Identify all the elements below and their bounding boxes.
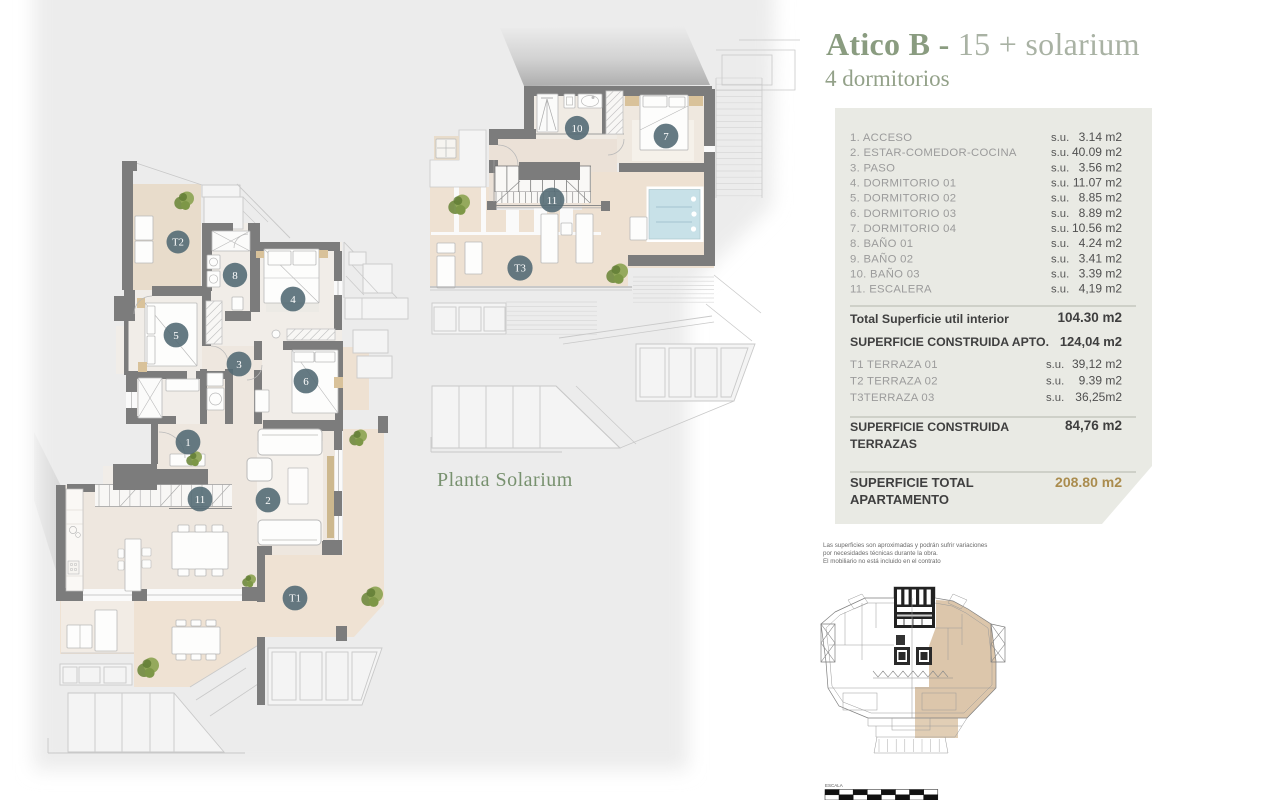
svg-text:8.85 m2: 8.85 m2 — [1079, 191, 1123, 205]
svg-text:s.u.: s.u. — [1046, 359, 1064, 371]
svg-text:4,19 m2: 4,19 m2 — [1079, 282, 1123, 296]
svg-text:Total Superficie util interior: Total Superficie util interior — [850, 312, 1009, 326]
svg-text:3: 3 — [236, 359, 242, 371]
svg-text:s.u.: s.u. — [1051, 177, 1069, 189]
svg-text:10. BAÑO 03: 10. BAÑO 03 — [850, 267, 920, 280]
svg-text:8: 8 — [232, 270, 238, 282]
svg-text:3. PASO: 3. PASO — [850, 162, 895, 174]
svg-text:4. DORMITORIO 01: 4. DORMITORIO 01 — [850, 177, 956, 189]
svg-text:5. DORMITORIO 02: 5. DORMITORIO 02 — [850, 193, 956, 205]
svg-text:6: 6 — [303, 376, 309, 388]
svg-text:s.u.: s.u. — [1051, 238, 1069, 250]
svg-text:Planta Solarium: Planta Solarium — [437, 469, 573, 491]
svg-text:s.u.: s.u. — [1051, 284, 1069, 296]
svg-text:6. DORMITORIO 03: 6. DORMITORIO 03 — [850, 208, 956, 220]
svg-text:8.89 m2: 8.89 m2 — [1079, 206, 1123, 220]
svg-text:s.u.: s.u. — [1051, 162, 1069, 174]
svg-text:ESCALA: ESCALA — [825, 783, 843, 788]
svg-text:s.u.: s.u. — [1051, 193, 1069, 205]
svg-text:124,04 m2: 124,04 m2 — [1060, 334, 1122, 349]
svg-text:8. BAÑO 01: 8. BAÑO 01 — [850, 237, 913, 250]
svg-text:por necesidades técnicas duran: por necesidades técnicas durante la obra… — [823, 550, 938, 557]
svg-text:1. ACCESO: 1. ACCESO — [850, 132, 912, 144]
svg-text:9. BAÑO 02: 9. BAÑO 02 — [850, 252, 913, 265]
svg-text:T1 TERRAZA 01: T1 TERRAZA 01 — [850, 359, 938, 371]
svg-text:40.09 m2: 40.09 m2 — [1072, 145, 1122, 159]
svg-text:9.39 m2: 9.39 m2 — [1079, 374, 1123, 388]
svg-text:4.24 m2: 4.24 m2 — [1079, 236, 1123, 250]
svg-text:SUPERFICIE TOTAL: SUPERFICIE TOTAL — [850, 475, 974, 490]
svg-text:3.41 m2: 3.41 m2 — [1079, 251, 1123, 265]
svg-text:1: 1 — [185, 437, 191, 449]
svg-text:4: 4 — [290, 294, 296, 306]
svg-text:s.u.: s.u. — [1051, 268, 1069, 280]
svg-text:El mobiliario no está incluido: El mobiliario no está incluido en el con… — [823, 558, 941, 565]
svg-text:2: 2 — [265, 495, 271, 507]
svg-text:208.80 m2: 208.80 m2 — [1055, 474, 1122, 490]
svg-text:3.39 m2: 3.39 m2 — [1079, 266, 1123, 280]
svg-text:2. ESTAR-COMEDOR-COCINA: 2. ESTAR-COMEDOR-COCINA — [850, 147, 1017, 159]
svg-text:s.u.: s.u. — [1051, 132, 1069, 144]
svg-text:s.u.: s.u. — [1051, 223, 1069, 235]
svg-text:Las superficies son aproximada: Las superficies son aproximadas y podrán… — [823, 542, 987, 549]
svg-text:s.u.: s.u. — [1046, 392, 1064, 404]
svg-text:3.56 m2: 3.56 m2 — [1079, 160, 1123, 174]
svg-text:11: 11 — [547, 195, 558, 207]
svg-text:7: 7 — [663, 131, 669, 143]
svg-text:11. ESCALERA: 11. ESCALERA — [850, 284, 932, 296]
svg-text:39,12 m2: 39,12 m2 — [1072, 357, 1122, 371]
svg-text:4 dormitorios: 4 dormitorios — [825, 66, 950, 91]
svg-text:36,25m2: 36,25m2 — [1075, 390, 1122, 404]
svg-text:T3: T3 — [514, 264, 526, 275]
svg-text:s.u.: s.u. — [1046, 376, 1064, 388]
svg-text:T1: T1 — [289, 594, 301, 605]
svg-text:10.56 m2: 10.56 m2 — [1072, 221, 1122, 235]
svg-text:T2 TERRAZA 02: T2 TERRAZA 02 — [850, 376, 938, 388]
svg-text:T3TERRAZA 03: T3TERRAZA 03 — [850, 392, 935, 404]
svg-text:11: 11 — [195, 494, 206, 506]
svg-text:TERRAZAS: TERRAZAS — [850, 437, 917, 451]
svg-text:11.07 m2: 11.07 m2 — [1073, 175, 1122, 189]
svg-text:s.u.: s.u. — [1051, 147, 1069, 159]
svg-text:s.u.: s.u. — [1051, 208, 1069, 220]
svg-text:SUPERFICIE CONSTRUIDA APTO.: SUPERFICIE CONSTRUIDA APTO. — [850, 335, 1049, 349]
svg-text:SUPERFICIE CONSTRUIDA: SUPERFICIE CONSTRUIDA — [850, 420, 1009, 434]
svg-text:Atico B - 15 + solarium: Atico B - 15 + solarium — [826, 26, 1140, 62]
svg-text:5: 5 — [173, 330, 179, 342]
svg-text:10: 10 — [572, 123, 584, 135]
svg-text:s.u.: s.u. — [1051, 253, 1069, 265]
svg-text:T2: T2 — [172, 238, 184, 249]
svg-text:3.14 m2: 3.14 m2 — [1079, 130, 1123, 144]
svg-text:APARTAMENTO: APARTAMENTO — [850, 492, 949, 507]
svg-text:7. DORMITORIO 04: 7. DORMITORIO 04 — [850, 223, 956, 235]
svg-text:104.30 m2: 104.30 m2 — [1057, 310, 1122, 325]
svg-text:84,76 m2: 84,76 m2 — [1065, 418, 1122, 433]
